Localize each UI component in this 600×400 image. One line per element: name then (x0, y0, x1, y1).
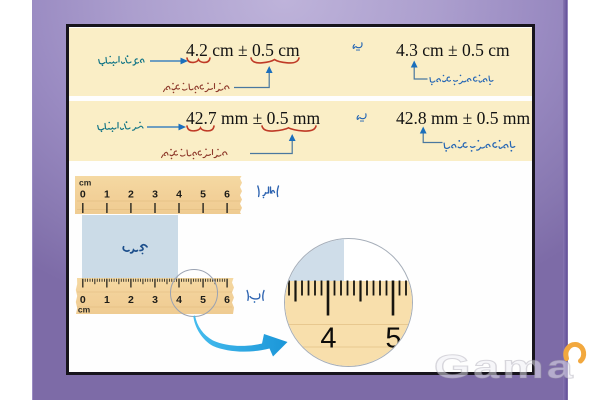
svg-text:1: 1 (104, 189, 110, 201)
svg-text:6: 6 (224, 294, 230, 306)
svg-text:4: 4 (176, 189, 182, 201)
svg-text:cm: cm (78, 305, 91, 315)
svg-text:5: 5 (385, 323, 401, 355)
svg-text:4: 4 (320, 323, 336, 355)
svg-text:2: 2 (128, 294, 134, 306)
svg-text:3: 3 (152, 294, 158, 306)
svg-text:cm: cm (79, 178, 92, 188)
svg-text:1: 1 (104, 294, 110, 306)
svg-text:5: 5 (200, 189, 206, 201)
svg-text:2: 2 (128, 189, 134, 201)
svg-text:6: 6 (224, 189, 230, 201)
svg-text:3: 3 (152, 189, 158, 201)
svg-text:0: 0 (80, 189, 86, 201)
